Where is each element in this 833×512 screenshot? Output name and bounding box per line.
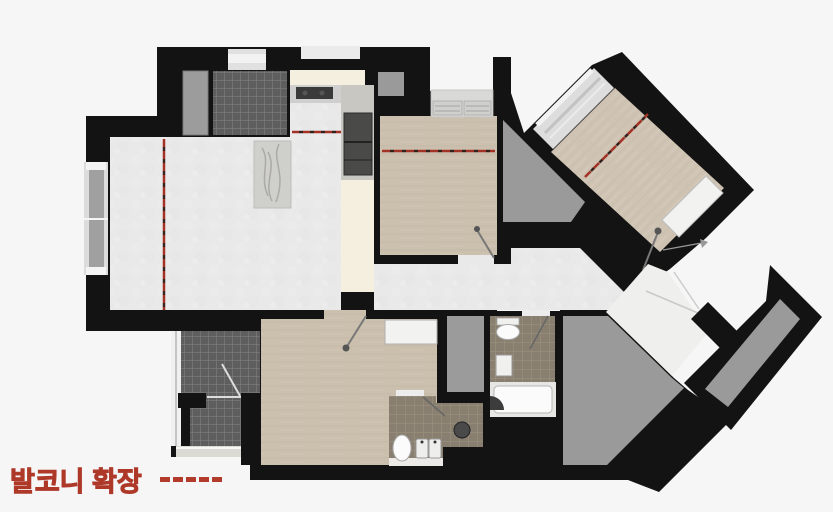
svg-text:발코니 확장: 발코니 확장 [10,467,142,497]
